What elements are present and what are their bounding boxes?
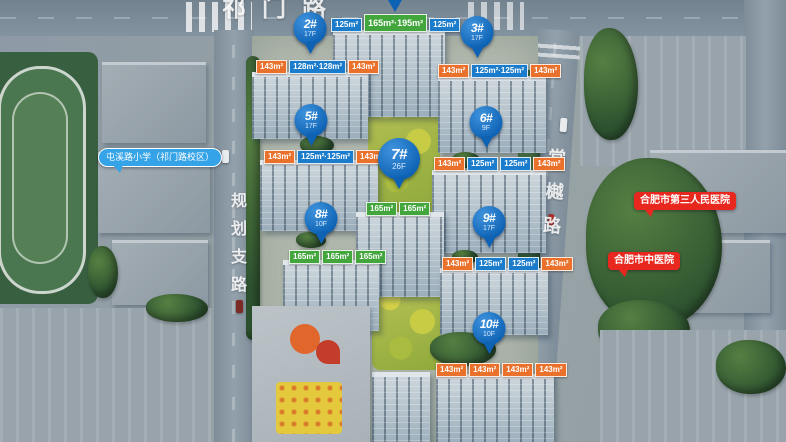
unit-area-tag: 125m² [475, 257, 506, 271]
unit-area-tag: 143m² [436, 363, 467, 377]
unit-area-tag: 165m²·195m² [364, 14, 427, 32]
unit-tags-building-9: 143m² 125m² 125m² 143m² [442, 257, 573, 271]
unit-tags-building-3: 143m² 125m²·125m² 143m² [438, 64, 561, 78]
unit-tags-building-1: 125m² 165m²·195m² 125m² [331, 14, 460, 32]
pin-bubble: 6# 9F [470, 106, 503, 139]
building-pin-6[interactable]: 6# 9F [470, 106, 503, 148]
unit-area-tag: 143m² [530, 64, 561, 78]
unit-area-tag: 125m² [500, 157, 531, 171]
pin-building-number: 2# [304, 18, 316, 30]
unit-area-tag: 125m² [331, 18, 362, 32]
building-pin-7[interactable]: 7# 26F [378, 138, 420, 189]
building-pin-1-clipped[interactable] [388, 0, 402, 12]
unit-area-tag: 125m² [429, 18, 460, 32]
poi-hospital-tcm-badge[interactable]: 合肥市中医院 [608, 252, 680, 270]
building-pin-5[interactable]: 5# 17F [295, 104, 328, 146]
pin-floor-count: 17F [304, 30, 316, 39]
pin-floor-count: 10F [315, 220, 327, 229]
unit-area-tag: 128m²·128m² [289, 60, 346, 74]
pin-floor-count: 17F [483, 224, 495, 233]
kindergarten-playground [276, 382, 342, 434]
building-pin-2[interactable]: 2# 17F [294, 12, 327, 54]
paved-lot [0, 308, 212, 442]
unit-area-tag: 143m² [348, 60, 379, 74]
unit-area-tag: 165m² [366, 202, 397, 216]
pin-tail [315, 233, 327, 244]
pin-tail [304, 43, 316, 54]
car [560, 118, 568, 132]
unit-tags-building-5: 143m² 125m²·125m² 143m² [264, 150, 387, 164]
unit-area-tag: 143m² [442, 257, 473, 271]
poi-hospital-third-badge[interactable]: 合肥市第三人民医院 [634, 192, 736, 210]
kindergarten [252, 306, 370, 442]
unit-tags-building-10: 143m² 143m² 143m² 143m² [436, 363, 567, 377]
pin-bubble: 9# 17F [473, 206, 506, 239]
unit-area-tag: 143m² [264, 150, 295, 164]
unit-area-tag: 165m² [355, 250, 386, 264]
unit-tags-building-6: 143m² 125m² 125m² 143m² [434, 157, 565, 171]
pin-bubble: 2# 17F [294, 12, 327, 45]
pin-bubble: 3# 17F [461, 16, 494, 49]
tree-cluster [146, 294, 208, 322]
poi-school-badge[interactable]: 屯溪路小学（祁门路校区） [98, 148, 222, 167]
unit-area-tag: 143m² [541, 257, 572, 271]
pin-building-number: 3# [471, 22, 483, 34]
pin-floor-count: 17F [471, 34, 483, 43]
pin-bubble: 5# 17F [295, 104, 328, 137]
unit-area-tag: 143m² [469, 363, 500, 377]
unit-area-tag: 143m² [535, 363, 566, 377]
tree-cluster [584, 28, 638, 140]
unit-tags-building-8: 165m² 165m² 165m² [289, 250, 386, 264]
school-building [102, 62, 206, 143]
pin-tail [483, 237, 495, 248]
tree-cluster [716, 340, 786, 394]
unit-area-tag: 125m²·125m² [471, 64, 528, 78]
pin-floor-count: 10F [483, 330, 495, 339]
road-name-left: 规划支路 [224, 192, 248, 304]
unit-area-tag: 143m² [502, 363, 533, 377]
tower-10 [436, 374, 554, 442]
unit-area-tag: 165m² [399, 202, 430, 216]
pin-building-number: 8# [315, 208, 327, 220]
car [222, 150, 229, 163]
unit-area-tag: 143m² [256, 60, 287, 74]
running-track-inner [12, 92, 68, 264]
building-pin-9[interactable]: 9# 17F [473, 206, 506, 248]
pin-tail [305, 135, 317, 146]
unit-area-tag: 125m² [467, 157, 498, 171]
poi-hospital-third-label: 合肥市第三人民医院 [640, 195, 730, 206]
crosswalk [536, 42, 581, 59]
unit-tags-building-7: 165m² 165m² [366, 202, 430, 216]
pin-tail [471, 47, 483, 58]
pin-bubble: 8# 10F [305, 202, 338, 235]
unit-area-tag: 143m² [434, 157, 465, 171]
pin-building-number: 5# [305, 110, 317, 122]
pin-floor-count: 26F [392, 162, 406, 171]
pin-bubble: 10# 10F [473, 312, 506, 345]
pin-tail [483, 343, 495, 354]
pin-bubble: 7# 26F [378, 138, 420, 180]
pin-building-number: 7# [391, 147, 407, 162]
pin-building-number: 9# [483, 212, 495, 224]
unit-area-tag: 125m²·125m² [297, 150, 354, 164]
unit-area-tag: 165m² [322, 250, 353, 264]
pin-floor-count: 17F [305, 122, 317, 131]
poi-badge-tail [113, 165, 123, 173]
tree-cluster [88, 246, 118, 298]
building-pin-3[interactable]: 3# 17F [461, 16, 494, 58]
masterplan-aerial-view: 125m² 165m²·195m² 125m² 143m² 128m²·128m… [0, 0, 786, 442]
tower-south [372, 372, 430, 442]
pin-tail [393, 178, 405, 189]
unit-area-tag: 165m² [289, 250, 320, 264]
pin-building-number: 10# [480, 318, 499, 330]
poi-hospital-tcm-label: 合肥市中医院 [614, 255, 674, 266]
unit-area-tag: 125m² [508, 257, 539, 271]
building-pin-10[interactable]: 10# 10F [473, 312, 506, 354]
unit-tags-building-2: 143m² 128m²·128m² 143m² [256, 60, 379, 74]
poi-badge-tail [644, 209, 654, 217]
poi-school-label: 屯溪路小学（祁门路校区） [106, 152, 214, 162]
pin-building-number: 6# [480, 112, 492, 124]
pin-floor-count: 9F [482, 124, 490, 133]
pin-tail [480, 137, 492, 148]
unit-area-tag: 143m² [533, 157, 564, 171]
kindergarten-roof [316, 340, 340, 364]
unit-area-tag: 143m² [438, 64, 469, 78]
building-pin-8[interactable]: 8# 10F [305, 202, 338, 244]
poi-badge-tail [618, 269, 628, 277]
